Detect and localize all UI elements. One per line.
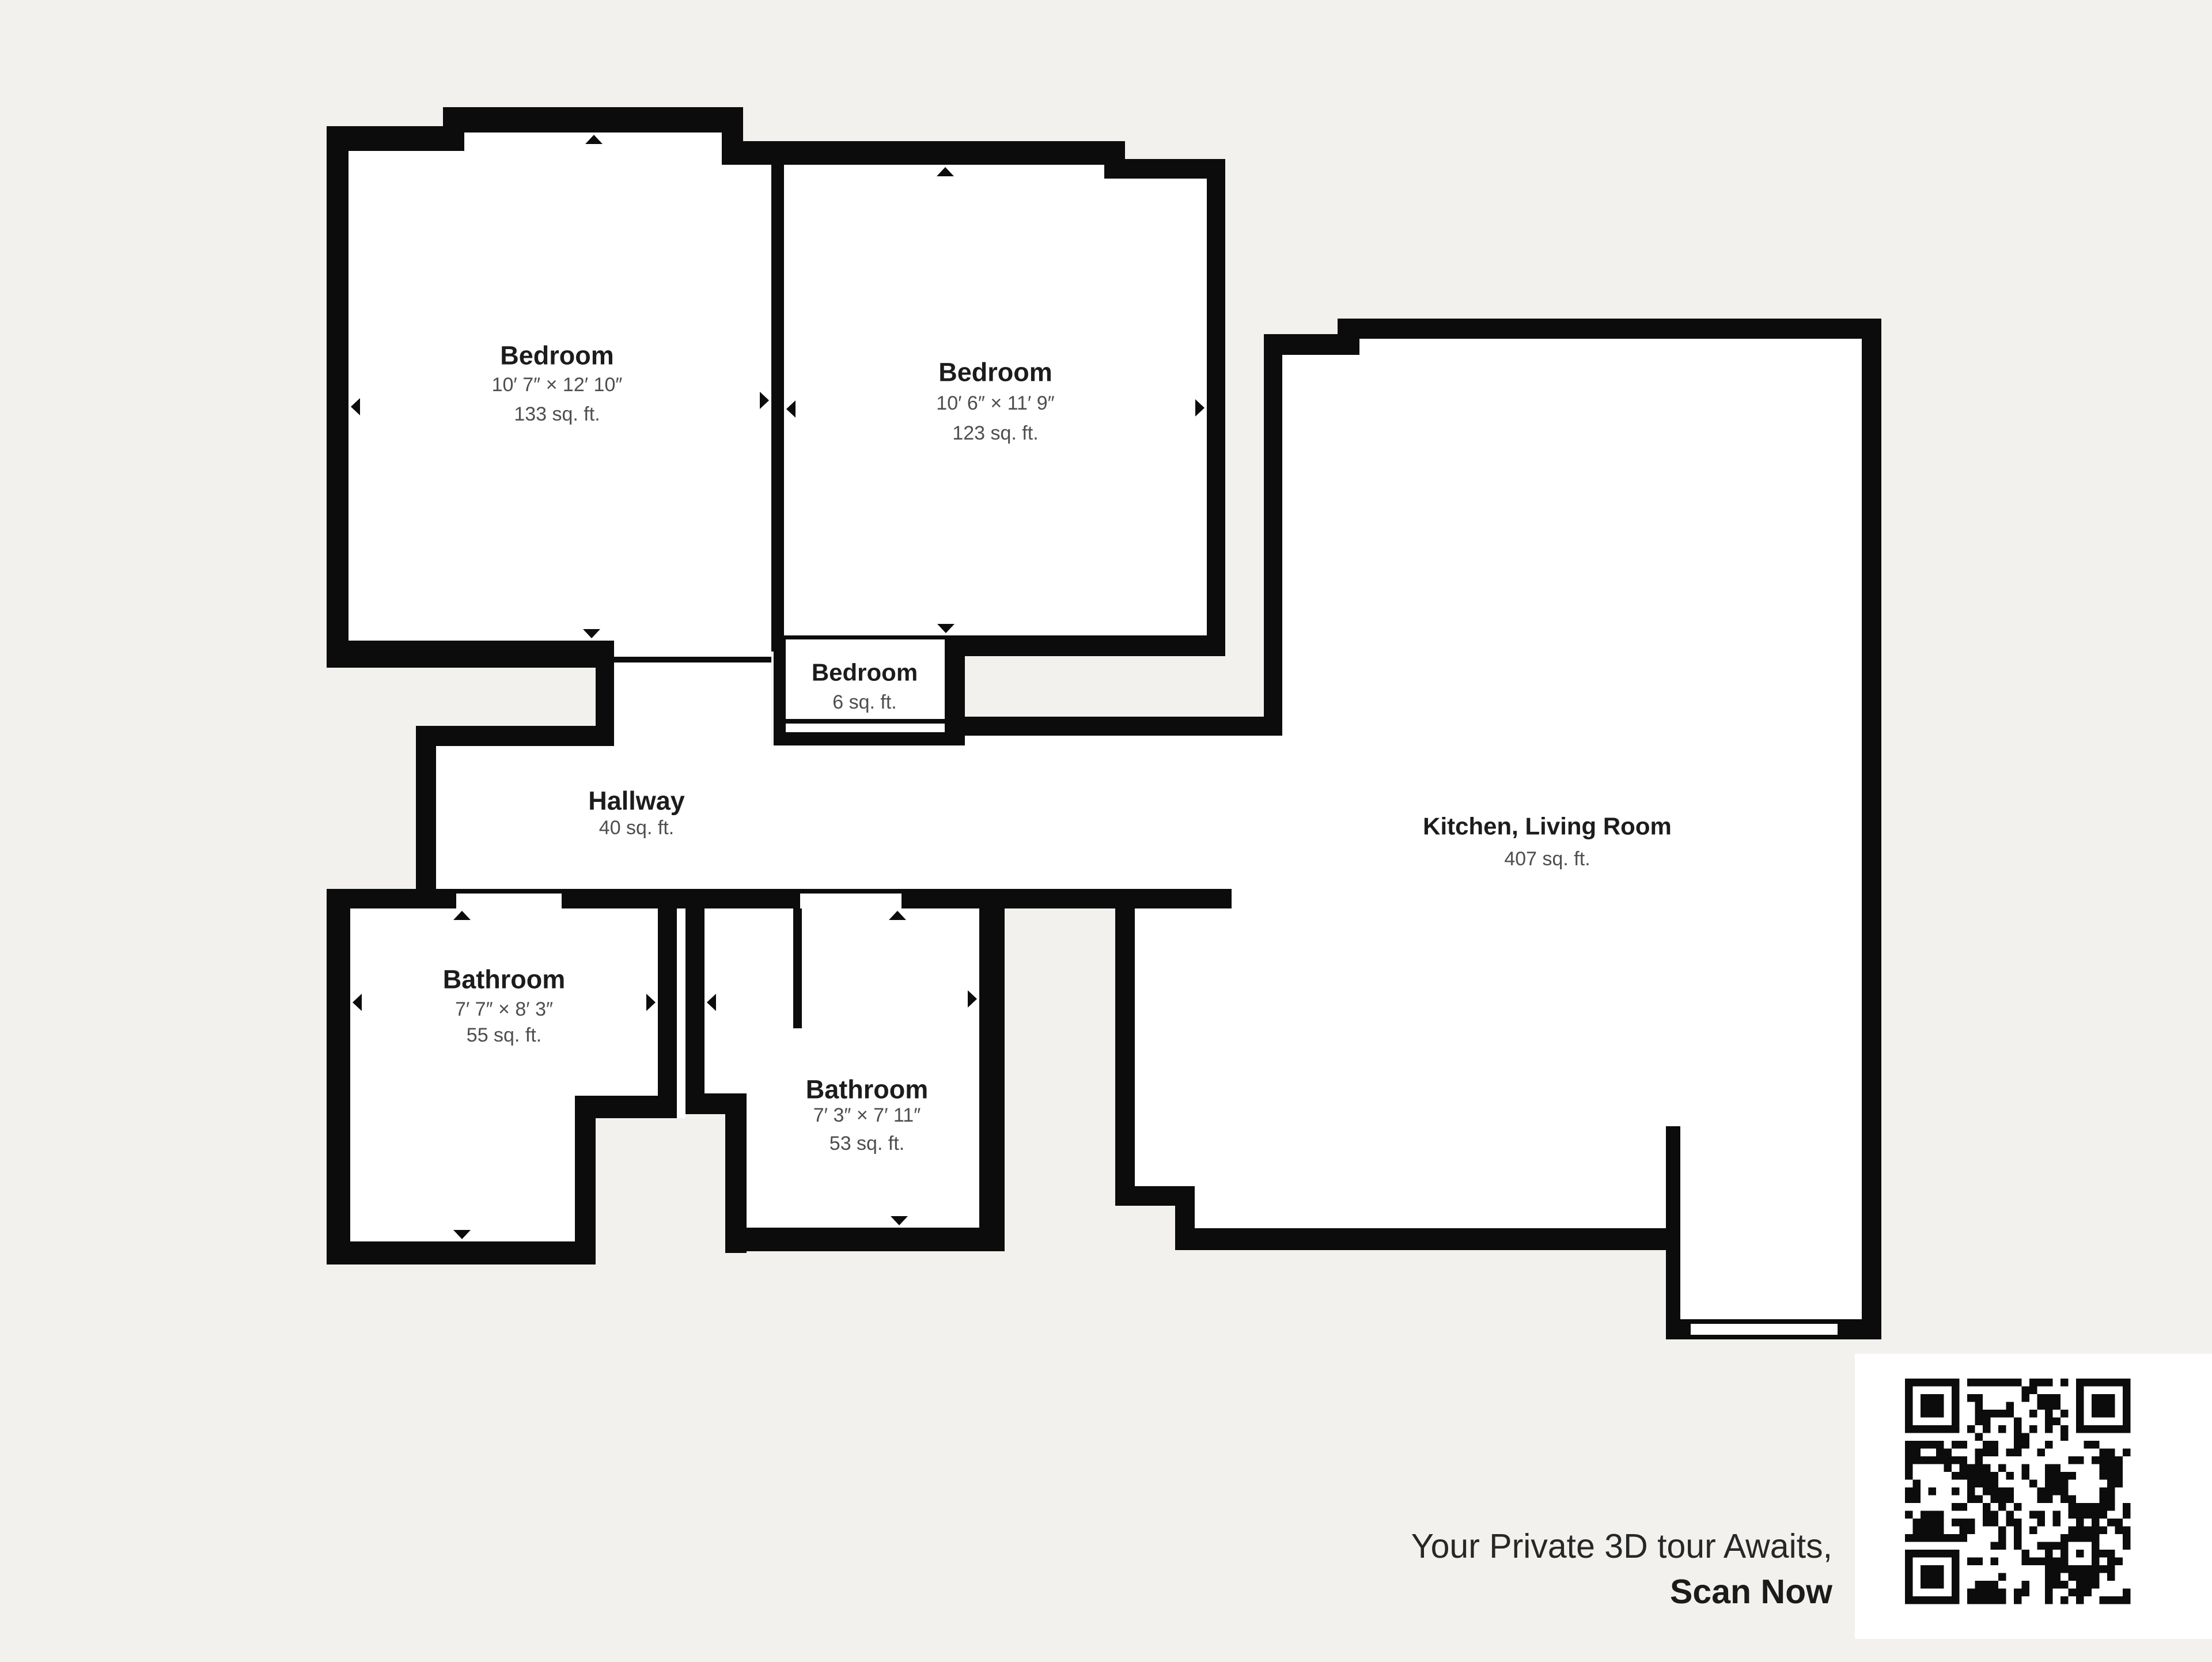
svg-text:407 sq. ft.: 407 sq. ft. [1504,848,1590,870]
svg-text:Bedroom: Bedroom [938,358,1052,387]
svg-text:Bathroom: Bathroom [806,1075,929,1104]
svg-text:Kitchen, Living Room: Kitchen, Living Room [1423,813,1672,840]
svg-text:Hallway: Hallway [588,786,685,816]
svg-text:7′ 7″ × 8′ 3″: 7′ 7″ × 8′ 3″ [455,998,553,1020]
svg-text:Bedroom: Bedroom [500,341,614,370]
svg-text:55 sq. ft.: 55 sq. ft. [467,1024,541,1046]
svg-text:133 sq. ft.: 133 sq. ft. [514,403,600,425]
svg-text:6 sq. ft.: 6 sq. ft. [832,691,897,713]
svg-text:123 sq. ft.: 123 sq. ft. [952,422,1038,444]
svg-text:53 sq. ft.: 53 sq. ft. [829,1133,904,1154]
svg-text:10′ 6″ × 11′ 9″: 10′ 6″ × 11′ 9″ [936,392,1054,414]
svg-text:Bathroom: Bathroom [443,965,566,994]
svg-text:40 sq. ft.: 40 sq. ft. [599,817,674,839]
svg-text:Bedroom: Bedroom [812,659,918,686]
svg-text:10′ 7″ × 12′ 10″: 10′ 7″ × 12′ 10″ [492,374,623,396]
svg-text:Your Private 3D tour Awaits,: Your Private 3D tour Awaits, [1411,1527,1832,1565]
svg-text:7′ 3″ × 7′ 11″: 7′ 3″ × 7′ 11″ [813,1104,921,1126]
svg-text:Scan Now: Scan Now [1670,1573,1832,1611]
